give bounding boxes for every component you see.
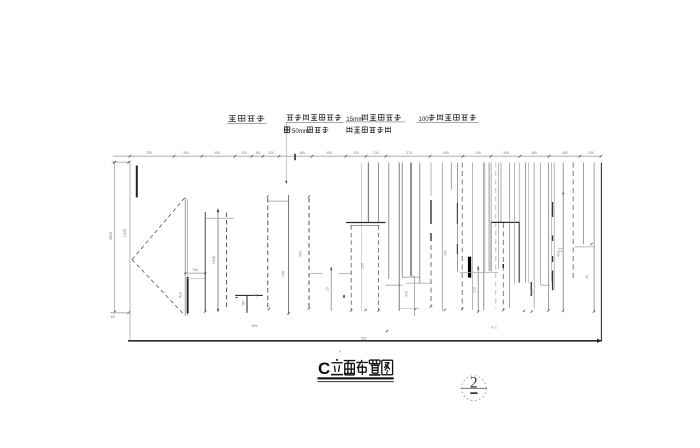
svg-text:210: 210 <box>373 151 379 155</box>
svg-text:375: 375 <box>406 151 412 155</box>
svg-text:360: 360 <box>299 151 305 155</box>
svg-text:150: 150 <box>241 151 247 155</box>
svg-text:W.C: W.C <box>491 326 498 330</box>
svg-text:403: 403 <box>557 251 561 257</box>
svg-text:210: 210 <box>268 151 274 155</box>
svg-text:150: 150 <box>299 251 303 257</box>
svg-text:100: 100 <box>418 116 429 123</box>
svg-text:1425: 1425 <box>123 229 127 237</box>
svg-text:654: 654 <box>252 324 258 328</box>
svg-text:2: 2 <box>470 374 478 391</box>
svg-text:415: 415 <box>473 287 477 293</box>
svg-text:50mm: 50mm <box>292 128 309 135</box>
svg-text:345: 345 <box>503 151 509 155</box>
svg-text:150: 150 <box>353 151 359 155</box>
svg-text:415: 415 <box>405 291 409 297</box>
svg-text:450: 450 <box>562 151 568 155</box>
svg-text:150: 150 <box>475 151 481 155</box>
svg-text:C: C <box>318 359 330 378</box>
svg-text:200: 200 <box>588 151 594 155</box>
svg-text:60: 60 <box>256 151 260 155</box>
svg-text:60: 60 <box>111 315 115 319</box>
svg-text:50: 50 <box>242 301 246 305</box>
svg-text:2825: 2825 <box>109 232 113 240</box>
svg-text:354: 354 <box>530 290 534 296</box>
svg-text:25: 25 <box>326 287 330 291</box>
svg-text:205: 205 <box>361 263 365 269</box>
svg-text:551: 551 <box>361 337 367 341</box>
svg-text:610: 610 <box>178 292 182 298</box>
svg-text:205: 205 <box>444 250 448 256</box>
svg-text:35: 35 <box>585 275 589 279</box>
svg-text:360: 360 <box>531 151 537 155</box>
svg-text:754: 754 <box>192 268 198 272</box>
svg-text:300: 300 <box>183 151 189 155</box>
svg-text:450: 450 <box>443 151 449 155</box>
svg-text:450: 450 <box>326 151 332 155</box>
svg-text:750: 750 <box>146 151 152 155</box>
svg-text:745: 745 <box>281 271 285 277</box>
svg-text:450: 450 <box>214 151 220 155</box>
svg-text:1500: 1500 <box>212 256 216 264</box>
